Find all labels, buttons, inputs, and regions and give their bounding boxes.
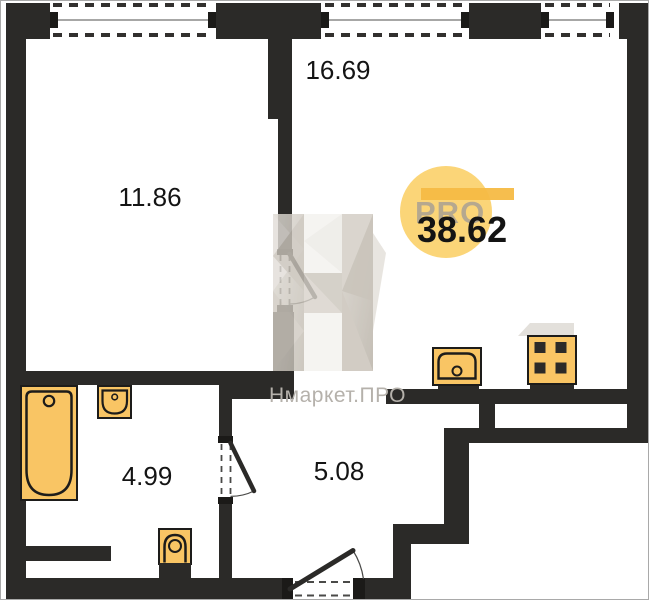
door-arc [231, 491, 255, 496]
wall-band-kitchen [386, 389, 648, 404]
room-area-label-living-kitchen: 16.69 [305, 55, 370, 85]
toilet-icon [159, 529, 191, 580]
wall-corner-topleft [6, 3, 50, 39]
window-stop [321, 12, 329, 28]
wall-step-vertical-2 [444, 428, 469, 544]
total-area-label: 38.62 [417, 209, 507, 250]
wall-bath-jamb-upper [219, 399, 232, 436]
watermark-h-logo [273, 214, 386, 371]
window-stop [208, 12, 216, 28]
bath-sink-icon [98, 386, 131, 418]
window-1 [50, 5, 216, 35]
door-jamb-bath-bottom [218, 497, 233, 504]
window-2 [321, 5, 469, 35]
room-area-label-hallway: 5.08 [314, 456, 365, 486]
window-stop [50, 12, 58, 28]
floor-plan-screenshot: 11.86 16.69 4.99 5.08 Нмаркет.ПРО PRO 38… [0, 0, 649, 600]
wall-bath-jamb-lower [219, 504, 232, 599]
toilet-tank [159, 563, 191, 580]
wall-shaft-left [479, 389, 495, 428]
wall-left [6, 3, 26, 599]
wall-niche-stub [16, 546, 111, 561]
door-leaf [290, 551, 353, 590]
stove-burner [556, 342, 567, 353]
stove-burner [556, 363, 567, 374]
stove-burner [535, 342, 546, 353]
window-3 [541, 5, 614, 35]
bathtub-icon [21, 386, 77, 500]
door-bathroom-swing [222, 443, 255, 496]
wall-right [627, 3, 648, 443]
door-arc [353, 551, 364, 580]
window-stop [606, 12, 614, 28]
stove-shadow [518, 323, 574, 336]
wall-bottom-left [6, 578, 291, 599]
watermark-brand-text: Нмаркет.ПРО [269, 384, 406, 407]
wall-band-lower [444, 428, 648, 443]
wall-pier-top-b [469, 3, 541, 39]
window-stop [461, 12, 469, 28]
watermark-facet [373, 233, 386, 331]
wall-pier-top-a [216, 3, 321, 39]
kitchen-sink-icon [433, 348, 481, 394]
wall-interroom-upper [268, 38, 292, 119]
wall-shaft-cavity [495, 404, 627, 428]
door-leaf [231, 443, 255, 491]
room-area-label-bathroom: 4.99 [122, 461, 173, 491]
door-entry-swing [290, 551, 364, 596]
room-area-label-bedroom: 11.86 [118, 182, 181, 212]
pro-badge: PRO 38.62 [400, 166, 514, 258]
door-jamb-entry-right [353, 578, 365, 599]
wall-bathroom-top [6, 371, 241, 385]
floor-plan-canvas: 11.86 16.69 4.99 5.08 Нмаркет.ПРО PRO 38… [1, 1, 648, 599]
stove-icon [518, 323, 576, 394]
stove-burner [535, 363, 546, 374]
window-stop [541, 12, 549, 28]
